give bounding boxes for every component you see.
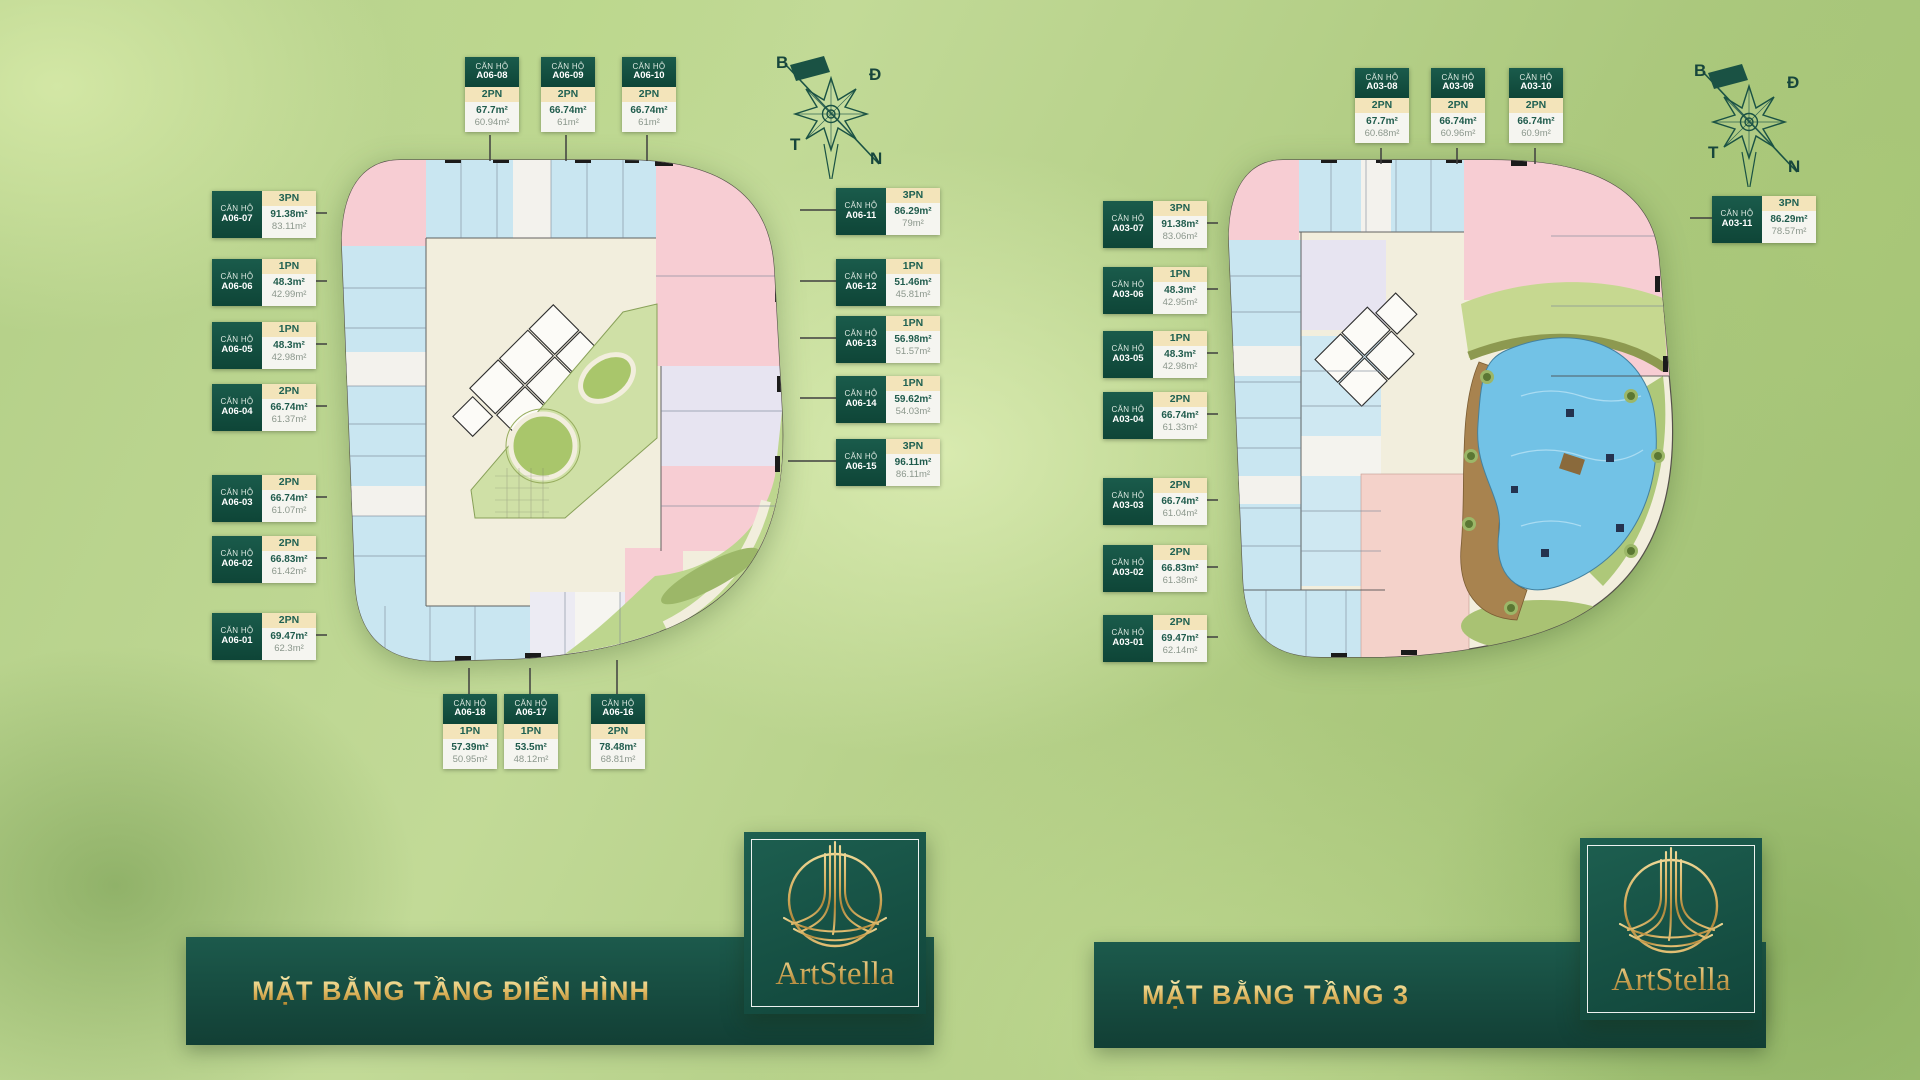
unit-code: A03-06 bbox=[1112, 290, 1143, 301]
unit-values: 2PN66.74m²61m² bbox=[541, 87, 595, 132]
brand-logo-box: ArtStella bbox=[744, 832, 926, 1014]
unit-code-box: CĂN HỘA06-17 bbox=[504, 694, 558, 724]
unit-values: 1PN59.62m²54.03m² bbox=[886, 376, 940, 423]
unit-area-net: 61.42m² bbox=[262, 566, 316, 578]
unit-code: A03-04 bbox=[1112, 415, 1143, 426]
unit-area-gross: 69.47m² bbox=[262, 630, 316, 643]
unit-area-net: 61.33m² bbox=[1153, 422, 1207, 434]
banner-title: MẶT BẰNG TẦNG 3 bbox=[1094, 980, 1409, 1011]
banner-title: MẶT BẰNG TẦNG ĐIỂN HÌNH bbox=[186, 976, 650, 1007]
unit-code: A03-07 bbox=[1112, 224, 1143, 235]
leader-line bbox=[1206, 352, 1218, 354]
unit-area-net: 86.11m² bbox=[886, 469, 940, 481]
unit-label: CĂN HỘA03-061PN48.3m²42.95m² bbox=[1103, 267, 1207, 314]
unit-bedrooms: 2PN bbox=[1431, 98, 1485, 113]
leader-line bbox=[788, 460, 836, 462]
unit-code: A06-01 bbox=[221, 636, 252, 647]
leader-line bbox=[315, 557, 327, 559]
unit-bedrooms: 3PN bbox=[1762, 196, 1816, 211]
unit-code: A06-15 bbox=[845, 462, 876, 473]
unit-area-gross: 66.74m² bbox=[1431, 115, 1485, 128]
leader-line bbox=[529, 668, 531, 694]
unit-code-box: CĂN HỘA06-06 bbox=[212, 259, 262, 306]
leader-line bbox=[315, 496, 327, 498]
unit-code-box: CĂN HỘA06-04 bbox=[212, 384, 262, 431]
unit-label: CĂN HỘA06-061PN48.3m²42.99m² bbox=[212, 259, 316, 306]
unit-values: 1PN51.46m²45.81m² bbox=[886, 259, 940, 306]
unit-label: CĂN HỘA06-032PN66.74m²61.07m² bbox=[212, 475, 316, 522]
unit-bedrooms: 2PN bbox=[622, 87, 676, 102]
unit-area-gross: 51.46m² bbox=[886, 276, 940, 289]
unit-label: CĂN HỘA03-102PN66.74m²60.9m² bbox=[1509, 68, 1563, 143]
unit-values: 3PN91.38m²83.06m² bbox=[1153, 201, 1207, 248]
unit-area-gross: 66.74m² bbox=[1153, 495, 1207, 508]
unit-code: A06-08 bbox=[476, 71, 507, 82]
unit-code-box: CĂN HỘA03-03 bbox=[1103, 478, 1153, 525]
unit-area-gross: 48.3m² bbox=[1153, 284, 1207, 297]
unit-code: A03-02 bbox=[1112, 568, 1143, 579]
unit-area-net: 62.14m² bbox=[1153, 645, 1207, 657]
unit-code-box: CĂN HỘA06-01 bbox=[212, 613, 262, 660]
leader-line bbox=[1206, 413, 1218, 415]
compass-south-label: N bbox=[1788, 157, 1800, 176]
unit-area-net: 79m² bbox=[886, 218, 940, 230]
unit-label: CĂN HỘA03-042PN66.74m²61.33m² bbox=[1103, 392, 1207, 439]
unit-bedrooms: 2PN bbox=[1153, 478, 1207, 493]
unit-code: A06-10 bbox=[633, 71, 664, 82]
unit-code-box: CĂN HỘA03-09 bbox=[1431, 68, 1485, 98]
unit-label: CĂN HỘA06-082PN67.7m²60.94m² bbox=[465, 57, 519, 132]
unit-area-net: 50.95m² bbox=[443, 754, 497, 766]
unit-label: CĂN HỘA06-131PN56.98m²51.57m² bbox=[836, 316, 940, 363]
leader-line bbox=[1206, 566, 1218, 568]
leader-line bbox=[1206, 288, 1218, 290]
compass-north-label: B bbox=[776, 53, 788, 72]
unit-label: CĂN HỘA03-073PN91.38m²83.06m² bbox=[1103, 201, 1207, 248]
unit-code: A03-09 bbox=[1442, 82, 1473, 93]
compass-north-label: B bbox=[1694, 61, 1706, 80]
unit-code-box: CĂN HỘA03-05 bbox=[1103, 331, 1153, 378]
compass-rose: B Đ T N bbox=[1686, 52, 1816, 187]
leader-line bbox=[315, 280, 327, 282]
leader-line bbox=[489, 135, 491, 161]
unit-label: CĂN HỘA03-022PN66.83m²61.38m² bbox=[1103, 545, 1207, 592]
unit-values: 2PN67.7m²60.68m² bbox=[1355, 98, 1409, 143]
unit-area-gross: 66.74m² bbox=[541, 104, 595, 117]
unit-values: 1PN56.98m²51.57m² bbox=[886, 316, 940, 363]
unit-code-box: CĂN HỘA03-01 bbox=[1103, 615, 1153, 662]
unit-area-gross: 78.48m² bbox=[591, 741, 645, 754]
unit-values: 2PN66.83m²61.38m² bbox=[1153, 545, 1207, 592]
artstella-logo-icon: ArtStella bbox=[1580, 838, 1762, 1020]
compass-south-label: N bbox=[870, 149, 882, 168]
unit-area-gross: 48.3m² bbox=[1153, 348, 1207, 361]
unit-code-box: CĂN HỘA03-10 bbox=[1509, 68, 1563, 98]
unit-label: CĂN HỘA06-113PN86.29m²79m² bbox=[836, 188, 940, 235]
unit-code: A06-17 bbox=[515, 708, 546, 719]
unit-label: CĂN HỘA06-171PN53.5m²48.12m² bbox=[504, 694, 558, 769]
unit-area-gross: 67.7m² bbox=[465, 104, 519, 117]
unit-values: 3PN86.29m²78.57m² bbox=[1762, 196, 1816, 243]
unit-code-box: CĂN HỘA06-12 bbox=[836, 259, 886, 306]
unit-label: CĂN HỘA06-121PN51.46m²45.81m² bbox=[836, 259, 940, 306]
unit-bedrooms: 2PN bbox=[1153, 392, 1207, 407]
unit-area-gross: 66.74m² bbox=[1153, 409, 1207, 422]
unit-values: 2PN66.74m²61.07m² bbox=[262, 475, 316, 522]
unit-bedrooms: 2PN bbox=[262, 536, 316, 551]
unit-area-gross: 96.11m² bbox=[886, 456, 940, 469]
unit-area-net: 61.07m² bbox=[262, 505, 316, 517]
unit-area-net: 42.99m² bbox=[262, 289, 316, 301]
unit-code: A06-14 bbox=[845, 399, 876, 410]
unit-bedrooms: 1PN bbox=[262, 259, 316, 274]
leader-line bbox=[800, 209, 836, 211]
unit-area-net: 61.04m² bbox=[1153, 508, 1207, 520]
unit-code: A06-07 bbox=[221, 214, 252, 225]
unit-label: CĂN HỘA03-032PN66.74m²61.04m² bbox=[1103, 478, 1207, 525]
unit-area-gross: 56.98m² bbox=[886, 333, 940, 346]
unit-area-net: 54.03m² bbox=[886, 406, 940, 418]
unit-code: A03-01 bbox=[1112, 638, 1143, 649]
unit-bedrooms: 2PN bbox=[465, 87, 519, 102]
unit-bedrooms: 2PN bbox=[1509, 98, 1563, 113]
unit-values: 2PN67.7m²60.94m² bbox=[465, 87, 519, 132]
unit-area-gross: 66.74m² bbox=[1509, 115, 1563, 128]
unit-bedrooms: 3PN bbox=[1153, 201, 1207, 216]
unit-label: CĂN HỘA06-102PN66.74m²61m² bbox=[622, 57, 676, 132]
unit-code-box: CĂN HỘA06-05 bbox=[212, 322, 262, 369]
unit-values: 3PN96.11m²86.11m² bbox=[886, 439, 940, 486]
unit-area-gross: 66.74m² bbox=[262, 492, 316, 505]
unit-values: 1PN53.5m²48.12m² bbox=[504, 724, 558, 769]
unit-label: CĂN HỘA03-051PN48.3m²42.98m² bbox=[1103, 331, 1207, 378]
unit-area-net: 61m² bbox=[622, 117, 676, 129]
brand-name: ArtStella bbox=[1611, 962, 1730, 998]
unit-area-gross: 59.62m² bbox=[886, 393, 940, 406]
unit-code: A06-06 bbox=[221, 282, 252, 293]
unit-code-box: CĂN HỘA06-16 bbox=[591, 694, 645, 724]
page: B Đ T N B Đ T N bbox=[0, 0, 1920, 1080]
unit-label: CĂN HỘA06-181PN57.39m²50.95m² bbox=[443, 694, 497, 769]
unit-code-box: CĂN HỘA06-02 bbox=[212, 536, 262, 583]
leader-line bbox=[1206, 222, 1218, 224]
unit-code-box: CĂN HỘA03-11 bbox=[1712, 196, 1762, 243]
leader-line bbox=[1380, 148, 1382, 164]
unit-values: 2PN66.74m²61.37m² bbox=[262, 384, 316, 431]
brand-name: ArtStella bbox=[775, 956, 894, 992]
unit-code-box: CĂN HỘA06-13 bbox=[836, 316, 886, 363]
unit-code-box: CĂN HỘA06-08 bbox=[465, 57, 519, 87]
unit-area-net: 42.98m² bbox=[1153, 361, 1207, 373]
leader-line bbox=[1206, 636, 1218, 638]
unit-values: 2PN66.74m²61m² bbox=[622, 87, 676, 132]
unit-code: A06-12 bbox=[845, 282, 876, 293]
unit-bedrooms: 1PN bbox=[262, 322, 316, 337]
unit-values: 2PN78.48m²68.81m² bbox=[591, 724, 645, 769]
leader-line bbox=[1206, 499, 1218, 501]
unit-area-net: 42.98m² bbox=[262, 352, 316, 364]
unit-area-gross: 66.74m² bbox=[622, 104, 676, 117]
unit-code-box: CĂN HỘA06-03 bbox=[212, 475, 262, 522]
unit-values: 2PN66.83m²61.42m² bbox=[262, 536, 316, 583]
unit-area-gross: 66.83m² bbox=[262, 553, 316, 566]
unit-bedrooms: 1PN bbox=[886, 316, 940, 331]
unit-code-box: CĂN HỘA06-07 bbox=[212, 191, 262, 238]
unit-area-gross: 66.83m² bbox=[1153, 562, 1207, 575]
unit-bedrooms: 2PN bbox=[1355, 98, 1409, 113]
unit-area-gross: 86.29m² bbox=[886, 205, 940, 218]
unit-code-box: CĂN HỘA03-07 bbox=[1103, 201, 1153, 248]
unit-bedrooms: 3PN bbox=[262, 191, 316, 206]
unit-label: CĂN HỘA03-082PN67.7m²60.68m² bbox=[1355, 68, 1409, 143]
unit-values: 1PN48.3m²42.98m² bbox=[1153, 331, 1207, 378]
unit-area-net: 83.06m² bbox=[1153, 231, 1207, 243]
unit-values: 1PN48.3m²42.98m² bbox=[262, 322, 316, 369]
unit-area-net: 42.95m² bbox=[1153, 297, 1207, 309]
compass-east-label: Đ bbox=[869, 65, 881, 84]
unit-area-gross: 67.7m² bbox=[1355, 115, 1409, 128]
unit-area-gross: 91.38m² bbox=[262, 208, 316, 221]
unit-label: CĂN HỘA06-162PN78.48m²68.81m² bbox=[591, 694, 645, 769]
unit-label: CĂN HỘA06-012PN69.47m²62.3m² bbox=[212, 613, 316, 660]
unit-area-gross: 86.29m² bbox=[1762, 213, 1816, 226]
artstella-logo-icon: ArtStella bbox=[744, 832, 926, 1014]
unit-label: CĂN HỘA06-022PN66.83m²61.42m² bbox=[212, 536, 316, 583]
unit-code: A03-05 bbox=[1112, 354, 1143, 365]
unit-code: A06-05 bbox=[221, 345, 252, 356]
unit-label: CĂN HỘA06-153PN96.11m²86.11m² bbox=[836, 439, 940, 486]
unit-area-gross: 69.47m² bbox=[1153, 632, 1207, 645]
leader-line bbox=[315, 212, 327, 214]
unit-bedrooms: 2PN bbox=[1153, 615, 1207, 630]
unit-code: A06-09 bbox=[552, 71, 583, 82]
unit-code-box: CĂN HỘA06-10 bbox=[622, 57, 676, 87]
unit-area-net: 45.81m² bbox=[886, 289, 940, 301]
unit-code-box: CĂN HỘA06-09 bbox=[541, 57, 595, 87]
unit-bedrooms: 1PN bbox=[443, 724, 497, 739]
unit-area-net: 61.37m² bbox=[262, 414, 316, 426]
unit-values: 3PN86.29m²79m² bbox=[886, 188, 940, 235]
brand-logo-box: ArtStella bbox=[1580, 838, 1762, 1020]
unit-bedrooms: 2PN bbox=[262, 384, 316, 399]
unit-values: 2PN69.47m²62.14m² bbox=[1153, 615, 1207, 662]
unit-code-box: CĂN HỘA06-15 bbox=[836, 439, 886, 486]
unit-label: CĂN HỘA03-092PN66.74m²60.96m² bbox=[1431, 68, 1485, 143]
unit-area-net: 62.3m² bbox=[262, 643, 316, 655]
unit-code: A06-13 bbox=[845, 339, 876, 350]
unit-code-box: CĂN HỘA06-11 bbox=[836, 188, 886, 235]
unit-code: A06-18 bbox=[454, 708, 485, 719]
unit-bedrooms: 1PN bbox=[504, 724, 558, 739]
unit-code: A03-08 bbox=[1366, 82, 1397, 93]
unit-area-net: 61.38m² bbox=[1153, 575, 1207, 587]
unit-values: 2PN66.74m²61.33m² bbox=[1153, 392, 1207, 439]
unit-label: CĂN HỘA06-042PN66.74m²61.37m² bbox=[212, 384, 316, 431]
unit-values: 2PN69.47m²62.3m² bbox=[262, 613, 316, 660]
leader-line bbox=[1690, 217, 1712, 219]
unit-code: A06-11 bbox=[846, 211, 877, 222]
unit-label: CĂN HỘA06-092PN66.74m²61m² bbox=[541, 57, 595, 132]
unit-area-net: 48.12m² bbox=[504, 754, 558, 766]
unit-values: 2PN66.74m²61.04m² bbox=[1153, 478, 1207, 525]
unit-area-net: 68.81m² bbox=[591, 754, 645, 766]
unit-bedrooms: 3PN bbox=[886, 439, 940, 454]
unit-bedrooms: 1PN bbox=[886, 376, 940, 391]
unit-area-net: 60.96m² bbox=[1431, 128, 1485, 140]
leader-line bbox=[800, 280, 836, 282]
unit-area-gross: 48.3m² bbox=[262, 276, 316, 289]
leader-line bbox=[800, 337, 836, 339]
unit-area-gross: 53.5m² bbox=[504, 741, 558, 754]
floor-plan-typical bbox=[325, 156, 805, 676]
unit-bedrooms: 2PN bbox=[262, 613, 316, 628]
leader-line bbox=[565, 135, 567, 161]
unit-code-box: CĂN HỘA03-02 bbox=[1103, 545, 1153, 592]
unit-values: 2PN66.74m²60.96m² bbox=[1431, 98, 1485, 143]
unit-values: 3PN91.38m²83.11m² bbox=[262, 191, 316, 238]
unit-code-box: CĂN HỘA03-08 bbox=[1355, 68, 1409, 98]
leader-line bbox=[315, 634, 327, 636]
unit-area-gross: 91.38m² bbox=[1153, 218, 1207, 231]
unit-bedrooms: 2PN bbox=[262, 475, 316, 490]
leader-line bbox=[800, 397, 836, 399]
unit-label: CĂN HỘA06-141PN59.62m²54.03m² bbox=[836, 376, 940, 423]
unit-area-net: 61m² bbox=[541, 117, 595, 129]
unit-code-box: CĂN HỘA03-06 bbox=[1103, 267, 1153, 314]
leader-line bbox=[315, 343, 327, 345]
unit-area-gross: 57.39m² bbox=[443, 741, 497, 754]
leader-line bbox=[616, 660, 618, 694]
unit-area-net: 78.57m² bbox=[1762, 226, 1816, 238]
unit-code: A06-02 bbox=[221, 559, 252, 570]
unit-bedrooms: 1PN bbox=[1153, 267, 1207, 282]
unit-area-gross: 48.3m² bbox=[262, 339, 316, 352]
unit-area-gross: 66.74m² bbox=[262, 401, 316, 414]
unit-bedrooms: 2PN bbox=[1153, 545, 1207, 560]
unit-code: A03-03 bbox=[1112, 501, 1143, 512]
unit-values: 2PN66.74m²60.9m² bbox=[1509, 98, 1563, 143]
unit-area-net: 51.57m² bbox=[886, 346, 940, 358]
unit-label: CĂN HỘA06-073PN91.38m²83.11m² bbox=[212, 191, 316, 238]
leader-line bbox=[646, 135, 648, 161]
unit-area-net: 60.9m² bbox=[1509, 128, 1563, 140]
unit-code-box: CĂN HỘA06-18 bbox=[443, 694, 497, 724]
unit-values: 1PN48.3m²42.95m² bbox=[1153, 267, 1207, 314]
unit-values: 1PN48.3m²42.99m² bbox=[262, 259, 316, 306]
unit-code: A06-04 bbox=[221, 407, 252, 418]
unit-values: 1PN57.39m²50.95m² bbox=[443, 724, 497, 769]
unit-code-box: CĂN HỘA03-04 bbox=[1103, 392, 1153, 439]
unit-code: A06-03 bbox=[221, 498, 252, 509]
leader-line bbox=[1534, 148, 1536, 164]
compass-west-label: T bbox=[790, 135, 801, 154]
unit-code: A03-11 bbox=[1722, 219, 1753, 230]
unit-bedrooms: 3PN bbox=[886, 188, 940, 203]
leader-line bbox=[1456, 148, 1458, 164]
leader-line bbox=[315, 405, 327, 407]
unit-label: CĂN HỘA03-113PN86.29m²78.57m² bbox=[1712, 196, 1816, 243]
unit-area-net: 60.68m² bbox=[1355, 128, 1409, 140]
unit-bedrooms: 2PN bbox=[591, 724, 645, 739]
floor-plan-level3 bbox=[1211, 156, 1711, 671]
unit-label: CĂN HỘA06-051PN48.3m²42.98m² bbox=[212, 322, 316, 369]
compass-east-label: Đ bbox=[1787, 73, 1799, 92]
unit-area-net: 83.11m² bbox=[262, 221, 316, 233]
leader-line bbox=[468, 668, 470, 694]
unit-label: CĂN HỘA03-012PN69.47m²62.14m² bbox=[1103, 615, 1207, 662]
compass-west-label: T bbox=[1708, 143, 1719, 162]
unit-area-net: 60.94m² bbox=[465, 117, 519, 129]
unit-code: A06-16 bbox=[602, 708, 633, 719]
unit-bedrooms: 1PN bbox=[886, 259, 940, 274]
unit-bedrooms: 2PN bbox=[541, 87, 595, 102]
unit-code-box: CĂN HỘA06-14 bbox=[836, 376, 886, 423]
compass-rose: B Đ T N bbox=[768, 44, 898, 179]
unit-code: A03-10 bbox=[1520, 82, 1551, 93]
unit-bedrooms: 1PN bbox=[1153, 331, 1207, 346]
